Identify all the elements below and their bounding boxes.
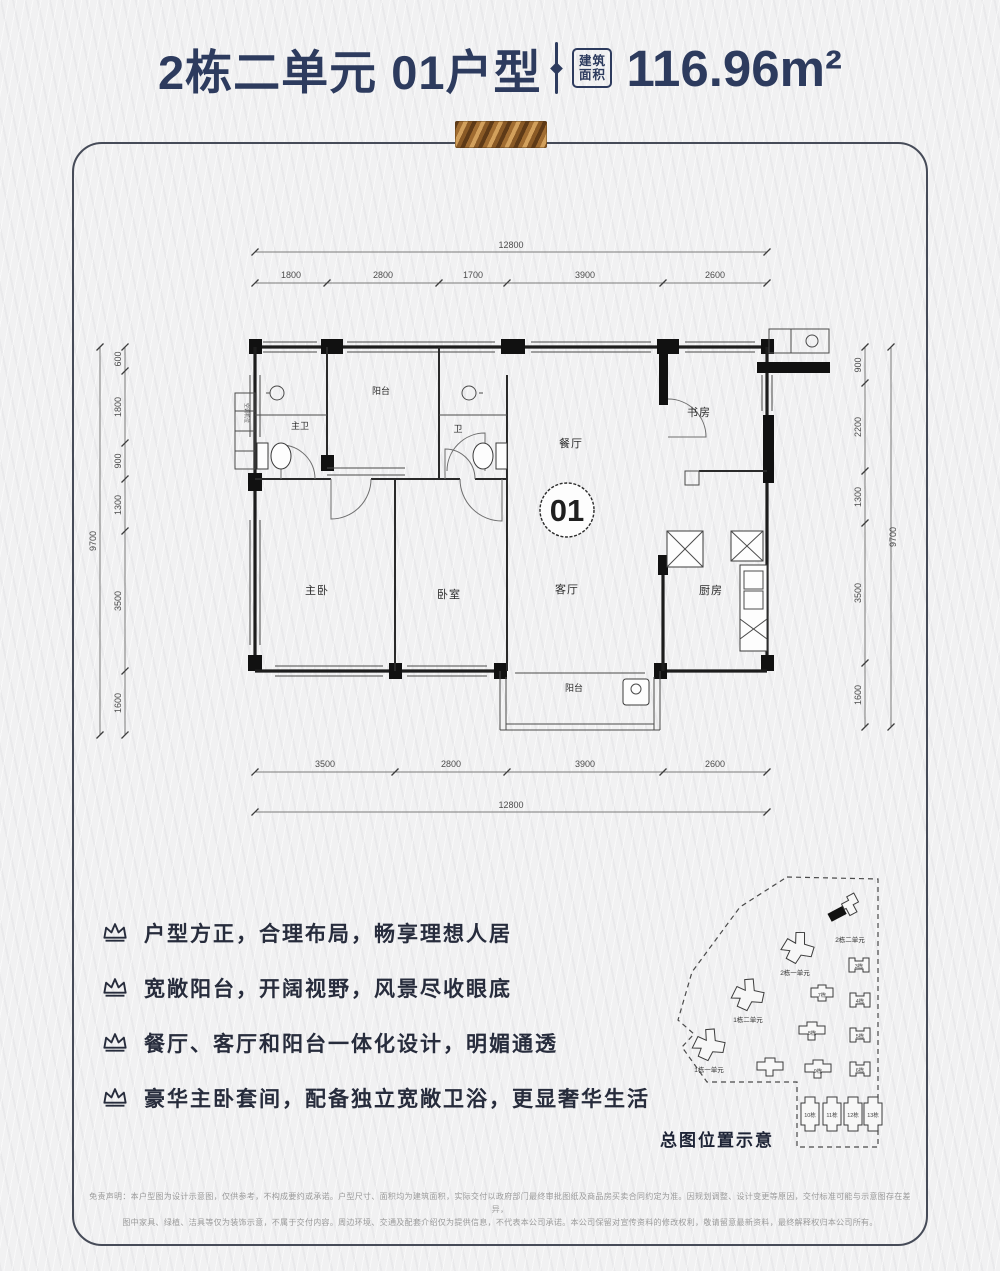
- feature-text: 豪华主卧套间，配备独立宽敞卫浴，更显奢华生活: [144, 1083, 650, 1113]
- svg-text:8栋: 8栋: [808, 1029, 817, 1037]
- site-label: 1栋二单元: [733, 1015, 763, 1024]
- floor-plan-walls: [235, 329, 830, 730]
- site-plan: 2栋二单元 2栋一单元 1栋二单元 1栋一单元 3栋 4栋 5栋 6栋 7栋 8…: [652, 862, 902, 1162]
- unit-number-circle: 01: [540, 483, 594, 537]
- svg-text:1300: 1300: [853, 487, 863, 507]
- svg-text:1800: 1800: [113, 397, 123, 417]
- building-footprint: [777, 928, 817, 966]
- area-badge-line1: 建筑: [579, 54, 606, 68]
- feature-text: 餐厅、客厅和阳台一体化设计，明媚通透: [144, 1028, 558, 1058]
- svg-text:3900: 3900: [575, 270, 595, 280]
- room-label-bedroom: 卧室: [437, 587, 461, 601]
- svg-text:1700: 1700: [463, 270, 483, 280]
- svg-text:9700: 9700: [888, 527, 898, 547]
- svg-text:9栋: 9栋: [814, 1067, 823, 1075]
- disclaimer-line2: 图中家具、绿植、洁具等仅为装饰示意，不属于交付内容。周边环境、交通及配套介绍仅为…: [88, 1216, 912, 1229]
- crown-icon: [100, 920, 130, 946]
- svg-text:6栋: 6栋: [856, 1066, 865, 1074]
- feature-item: 豪华主卧套间，配备独立宽敞卫浴，更显奢华生活: [100, 1081, 640, 1115]
- svg-text:2800: 2800: [441, 759, 461, 769]
- site-label-highlight: 2栋二单元: [835, 935, 865, 944]
- floor-plan: 12800 1800 2800 1700 3900 2600 3500 2800…: [85, 225, 915, 850]
- room-label-top-balcony: 阳台: [372, 385, 390, 396]
- svg-text:7栋: 7栋: [818, 991, 827, 999]
- area-badge-line2: 面积: [579, 68, 606, 82]
- svg-text:4栋: 4栋: [856, 997, 865, 1005]
- title-separator: [555, 42, 558, 94]
- crown-icon: [100, 975, 130, 1001]
- crown-icon: [100, 1085, 130, 1111]
- svg-text:1800: 1800: [281, 270, 301, 280]
- room-label-ac-platform: 空调机位: [243, 403, 250, 423]
- header: 2栋二单元 01户型 建筑 面积 116.96m²: [0, 30, 1000, 106]
- page-title: 2栋二单元 01户型: [158, 34, 541, 103]
- svg-text:9700: 9700: [88, 531, 98, 551]
- highlighted-building: [825, 893, 863, 924]
- room-label-master-bath: 主卫: [291, 420, 309, 431]
- room-label-bath: 卫: [453, 424, 462, 434]
- site-plan-caption: 总图位置示意: [660, 1130, 774, 1150]
- svg-text:3500: 3500: [315, 759, 335, 769]
- svg-text:13栋: 13栋: [867, 1111, 879, 1119]
- area-value: 116.96m²: [626, 39, 842, 98]
- svg-text:11栋: 11栋: [826, 1111, 838, 1119]
- diamond-icon: [550, 62, 563, 75]
- room-label-master-bedroom: 主卧: [305, 584, 329, 597]
- svg-text:5栋: 5栋: [856, 1032, 865, 1040]
- crown-icon: [100, 1030, 130, 1056]
- flyer-page: 2栋二单元 01户型 建筑 面积 116.96m² 12800 1800 280…: [0, 0, 1000, 1271]
- feature-item: 户型方正，合理布局，畅享理想人居: [100, 916, 640, 950]
- room-label-study: 书房: [687, 406, 711, 419]
- svg-text:600: 600: [113, 351, 123, 366]
- svg-text:12800: 12800: [498, 240, 523, 250]
- building-footprint: [727, 975, 768, 1015]
- disclaimer-line1: 免责声明：本户型图为设计示意图，仅供参考，不构成要约或承诺。户型尺寸、面积均为建…: [88, 1190, 912, 1216]
- building-footprint: [757, 1058, 783, 1076]
- disclaimer: 免责声明：本户型图为设计示意图，仅供参考，不构成要约或承诺。户型尺寸、面积均为建…: [88, 1190, 912, 1229]
- svg-text:2600: 2600: [705, 270, 725, 280]
- copper-accent-bar: [455, 121, 547, 148]
- dimension-lines: 12800 1800 2800 1700 3900 2600 3500 2800…: [88, 240, 898, 816]
- svg-text:12栋: 12栋: [847, 1111, 859, 1119]
- svg-text:3500: 3500: [113, 591, 123, 611]
- svg-text:3栋: 3栋: [855, 962, 864, 970]
- svg-text:1600: 1600: [853, 685, 863, 705]
- svg-text:2200: 2200: [853, 417, 863, 437]
- area-badge: 建筑 面积: [572, 48, 612, 88]
- room-label-living: 客厅: [555, 582, 579, 596]
- feature-item: 宽敞阳台，开阔视野，风景尽收眼底: [100, 971, 640, 1005]
- site-label: 2栋一单元: [780, 968, 810, 977]
- svg-text:12800: 12800: [498, 800, 523, 810]
- door-arcs: [281, 399, 706, 521]
- svg-text:1600: 1600: [113, 693, 123, 713]
- svg-text:3900: 3900: [575, 759, 595, 769]
- building-footprint: [688, 1025, 729, 1065]
- svg-text:900: 900: [853, 357, 863, 372]
- svg-text:2600: 2600: [705, 759, 725, 769]
- room-label-dining: 餐厅: [559, 436, 583, 450]
- svg-text:3500: 3500: [853, 583, 863, 603]
- feature-text: 户型方正，合理布局，畅享理想人居: [144, 918, 512, 948]
- svg-text:10栋: 10栋: [804, 1111, 816, 1119]
- feature-list: 户型方正，合理布局，畅享理想人居 宽敞阳台，开阔视野，风景尽收眼底 餐厅、客厅和…: [100, 916, 640, 1136]
- room-label-balcony: 阳台: [565, 682, 583, 693]
- svg-text:1300: 1300: [113, 495, 123, 515]
- feature-item: 餐厅、客厅和阳台一体化设计，明媚通透: [100, 1026, 640, 1060]
- svg-text:2800: 2800: [373, 270, 393, 280]
- feature-text: 宽敞阳台，开阔视野，风景尽收眼底: [144, 973, 512, 1003]
- unit-number: 01: [550, 493, 584, 528]
- svg-text:900: 900: [113, 453, 123, 468]
- room-labels: 主卫 阳台 卫 餐厅 书房 主卧 卧室 客厅 厨房 阳台 空调机位: [243, 385, 723, 693]
- site-label: 1栋一单元: [694, 1065, 724, 1074]
- room-label-kitchen: 厨房: [699, 584, 723, 597]
